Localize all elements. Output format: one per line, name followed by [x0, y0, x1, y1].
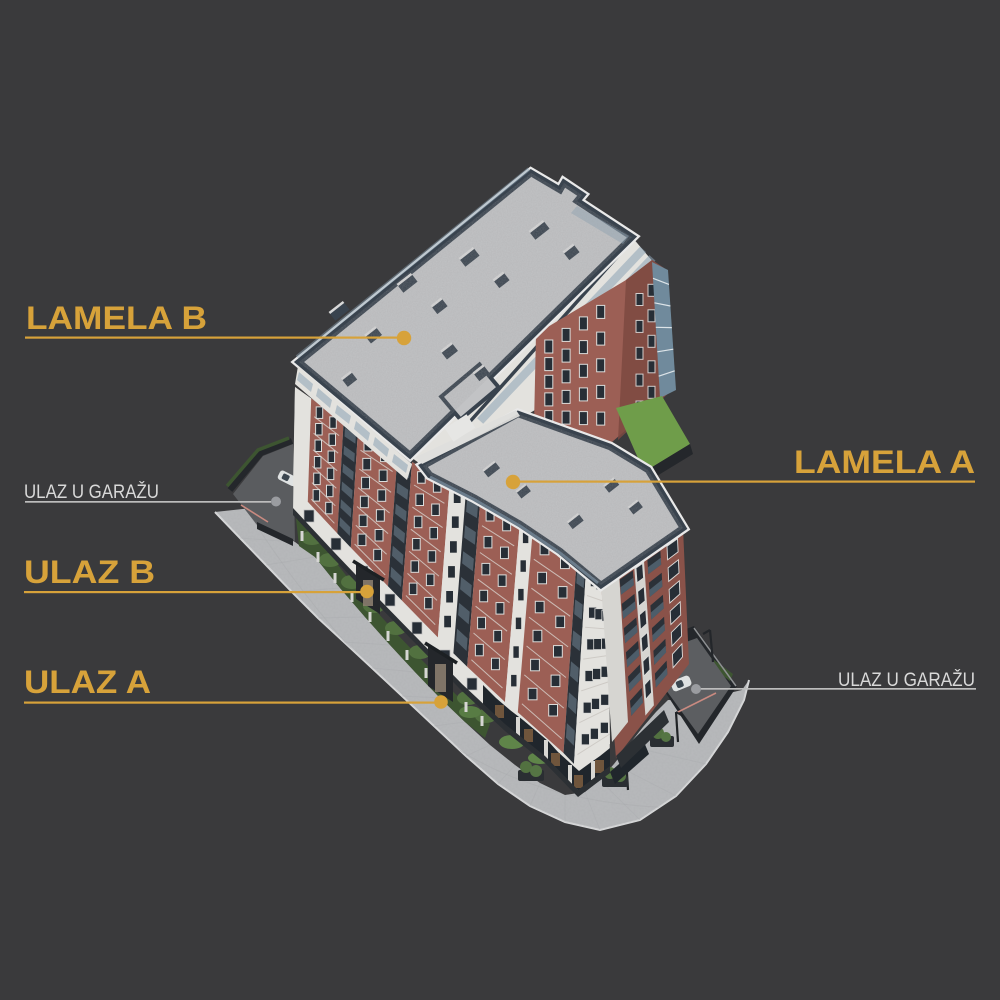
svg-text:ULAZ A: ULAZ A [24, 664, 151, 700]
svg-text:ULAZ U GARAŽU: ULAZ U GARAŽU [24, 480, 159, 503]
svg-text:ULAZ U GARAŽU: ULAZ U GARAŽU [838, 668, 975, 691]
svg-text:LAMELA A: LAMELA A [794, 444, 975, 480]
svg-text:LAMELA B: LAMELA B [26, 300, 207, 336]
svg-text:ULAZ B: ULAZ B [24, 554, 155, 590]
